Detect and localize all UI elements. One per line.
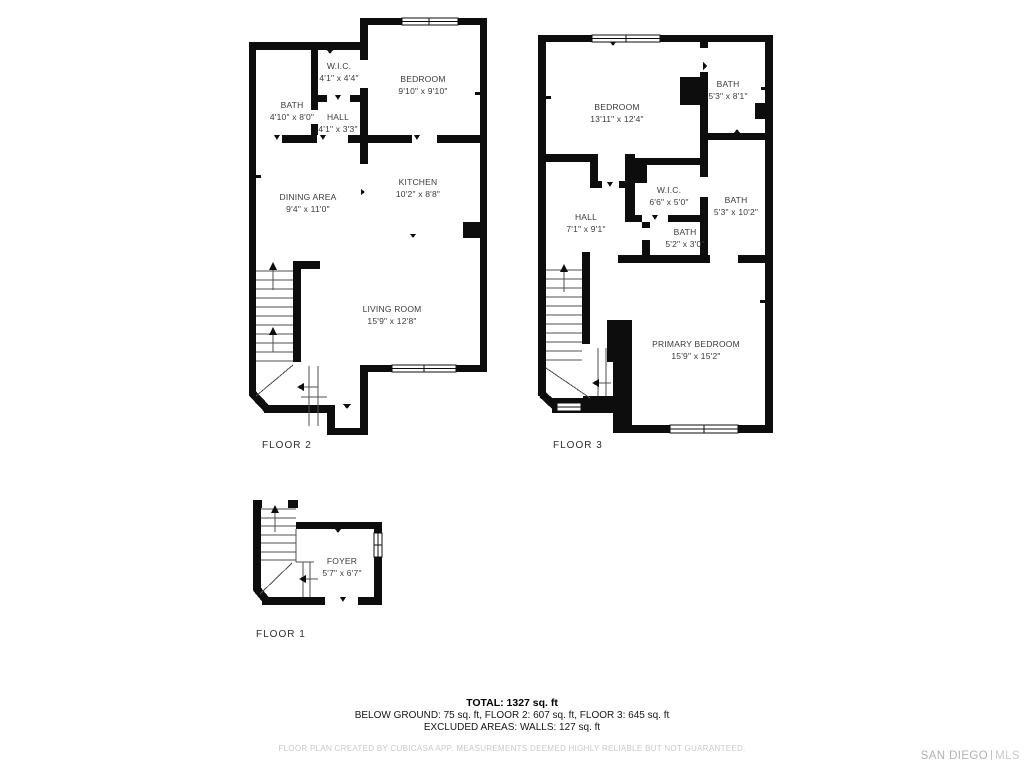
area-summary: TOTAL: 1327 sq. ft BELOW GROUND: 75 sq. …: [0, 697, 1024, 753]
room-name: BEDROOM: [398, 73, 447, 85]
room-dims: 13'11" x 12'4": [590, 113, 644, 125]
room-label-dining-f2: DINING AREA 9'4" x 11'0": [280, 191, 337, 215]
room-name: FOYER: [322, 555, 361, 567]
room-name: W.I.C.: [319, 60, 358, 72]
floorplan-page: W.I.C. 4'1" x 4'4" BEDROOM 9'10" x 9'10"…: [0, 0, 1024, 768]
room-name: BATH: [270, 99, 314, 111]
room-name: KITCHEN: [396, 176, 440, 188]
room-name: BATH: [665, 226, 704, 238]
room-label-primary-bedroom-f3: PRIMARY BEDROOM 15'9" x 15'2": [652, 338, 740, 362]
floorplan-graphics: [0, 0, 1024, 768]
floor-1-stairs: [260, 505, 318, 597]
room-dims: 15'9" x 15'2": [652, 350, 740, 362]
floor-1-title: FLOOR 1: [256, 629, 306, 640]
room-dims: 9'4" x 11'0": [280, 203, 337, 215]
floor-2-plan: [249, 18, 487, 435]
room-label-bath-small-f3: BATH 5'2" x 3'0": [665, 226, 704, 250]
room-dims: 4'1" x 3'3": [318, 123, 357, 135]
room-label-kitchen-f2: KITCHEN 10'2" x 8'8": [396, 176, 440, 200]
room-dims: 6'6" x 5'0": [649, 196, 688, 208]
excluded-areas-text: EXCLUDED AREAS: WALLS: 127 sq. ft: [0, 722, 1024, 733]
room-name: BEDROOM: [590, 101, 644, 113]
floor-breakdown-text: BELOW GROUND: 75 sq. ft, FLOOR 2: 607 sq…: [0, 710, 1024, 721]
room-name: HALL: [318, 111, 357, 123]
room-label-hall-f2: HALL 4'1" x 3'3": [318, 111, 357, 135]
room-label-bath-right-f3: BATH 5'3" x 10'2": [714, 194, 758, 218]
room-label-bath-f2: BATH 4'10" x 8'0": [270, 99, 314, 123]
floor-2-stairs: [256, 262, 327, 426]
room-name: PRIMARY BEDROOM: [652, 338, 740, 350]
room-name: DINING AREA: [280, 191, 337, 203]
room-label-wic-f2: W.I.C. 4'1" x 4'4": [319, 60, 358, 84]
watermark-suffix: MLS: [995, 750, 1020, 762]
room-dims: 10'2" x 8'8": [396, 188, 440, 200]
room-dims: 5'3" x 10'2": [714, 206, 758, 218]
floor-2-title: FLOOR 2: [262, 440, 312, 451]
floor-1-windows: [374, 533, 382, 557]
room-label-bedroom-f3: BEDROOM 13'11" x 12'4": [590, 101, 644, 125]
room-label-bath-top-f3: BATH 5'3" x 8'1": [708, 78, 747, 102]
room-name: BATH: [708, 78, 747, 90]
room-name: W.I.C.: [649, 184, 688, 196]
watermark-separator: [991, 750, 992, 760]
room-dims: 4'1" x 4'4": [319, 72, 358, 84]
room-dims: 15'9" x 12'8": [363, 315, 422, 327]
room-dims: 5'7" x 6'7": [322, 567, 361, 579]
room-label-bedroom-f2: BEDROOM 9'10" x 9'10": [398, 73, 447, 97]
room-name: LIVING ROOM: [363, 303, 422, 315]
room-label-foyer-f1: FOYER 5'7" x 6'7": [322, 555, 361, 579]
mls-watermark: SAN DIEGOMLS: [921, 750, 1020, 762]
disclaimer-text: FLOOR PLAN CREATED BY CUBICASA APP. MEAS…: [0, 744, 1024, 753]
room-label-wic-f3: W.I.C. 6'6" x 5'0": [649, 184, 688, 208]
room-dims: 5'3" x 8'1": [708, 90, 747, 102]
room-dims: 7'1" x 9'1": [566, 223, 605, 235]
room-name: HALL: [566, 211, 605, 223]
watermark-brand: SAN DIEGO: [921, 750, 989, 762]
floor-1-plan: [253, 500, 382, 605]
total-area-text: TOTAL: 1327 sq. ft: [0, 697, 1024, 709]
room-dims: 9'10" x 9'10": [398, 85, 447, 97]
room-label-hall-f3: HALL 7'1" x 9'1": [566, 211, 605, 235]
room-dims: 5'2" x 3'0": [665, 238, 704, 250]
floor-3-stairs: [546, 264, 611, 398]
room-label-living-f2: LIVING ROOM 15'9" x 12'8": [363, 303, 422, 327]
room-dims: 4'10" x 8'0": [270, 111, 314, 123]
room-name: BATH: [714, 194, 758, 206]
floor-3-title: FLOOR 3: [553, 440, 603, 451]
